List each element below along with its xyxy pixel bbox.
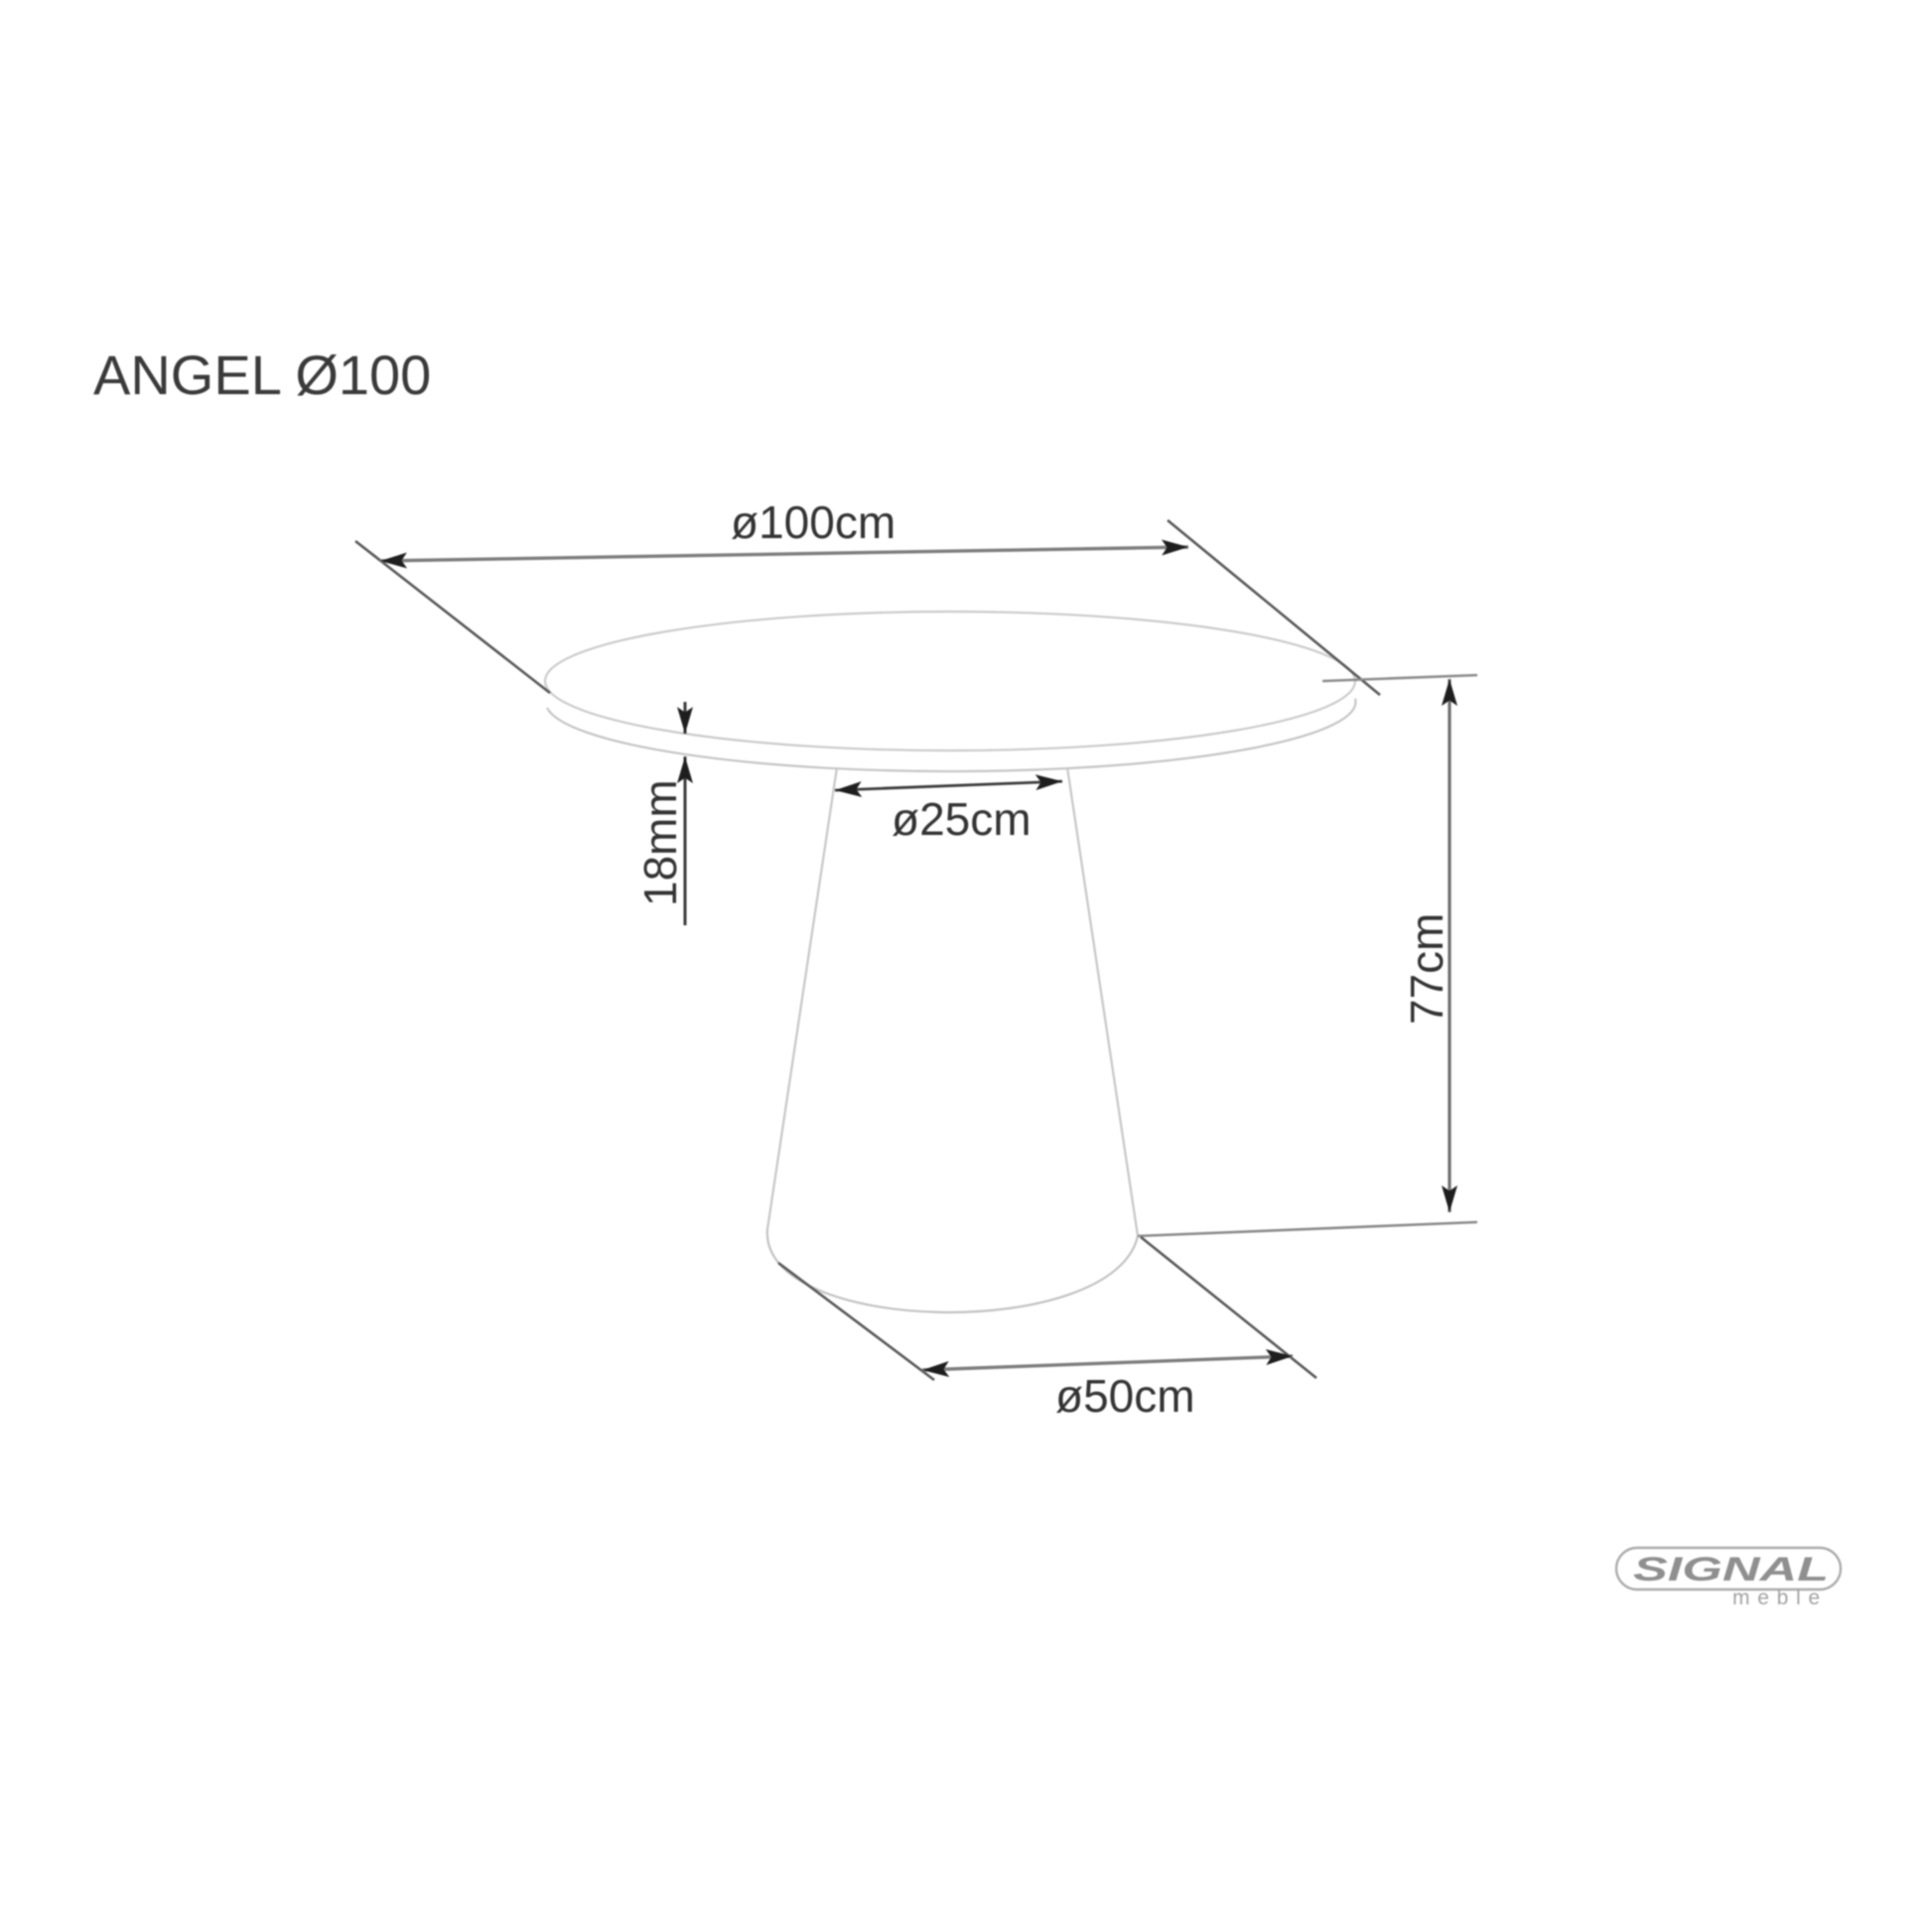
svg-text:ø25cm: ø25cm <box>892 793 1032 845</box>
svg-text:18mm: 18mm <box>634 779 686 906</box>
svg-text:SIGNAL: SIGNAL <box>1633 1551 1829 1588</box>
svg-text:77cm: 77cm <box>1401 913 1452 1025</box>
svg-text:ANGEL Ø100: ANGEL Ø100 <box>93 344 431 406</box>
svg-text:ø100cm: ø100cm <box>731 496 896 548</box>
svg-text:ø50cm: ø50cm <box>1055 1370 1195 1422</box>
